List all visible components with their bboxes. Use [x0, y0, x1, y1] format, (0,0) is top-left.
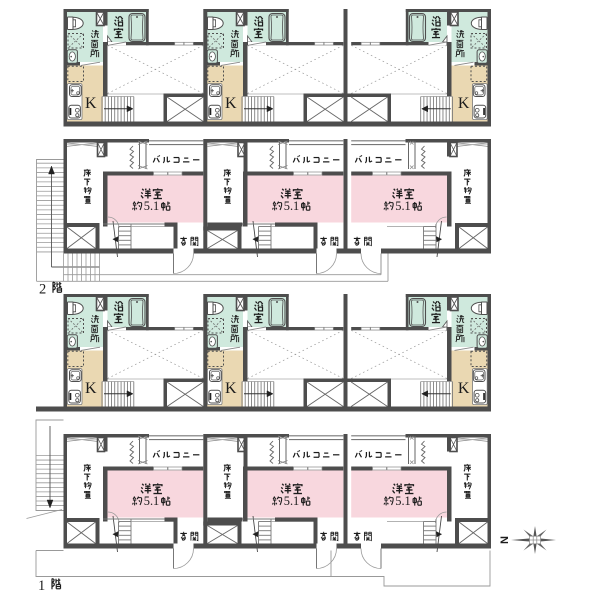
svg-text:K: K: [85, 380, 97, 397]
svg-text:N: N: [499, 536, 511, 544]
svg-text:K: K: [225, 95, 237, 112]
svg-text:1: 1: [38, 578, 45, 594]
svg-text:K: K: [458, 380, 470, 397]
svg-text:2: 2: [39, 282, 46, 298]
svg-text:5.1: 5.1: [395, 199, 411, 213]
svg-text:5.1: 5.1: [284, 494, 300, 508]
svg-text:K: K: [458, 95, 470, 112]
svg-text:5.1: 5.1: [395, 494, 411, 508]
svg-text:5.1: 5.1: [144, 199, 160, 213]
svg-text:5.1: 5.1: [144, 494, 160, 508]
svg-text:K: K: [225, 380, 237, 397]
svg-text:K: K: [85, 95, 97, 112]
svg-text:5.1: 5.1: [284, 199, 300, 213]
